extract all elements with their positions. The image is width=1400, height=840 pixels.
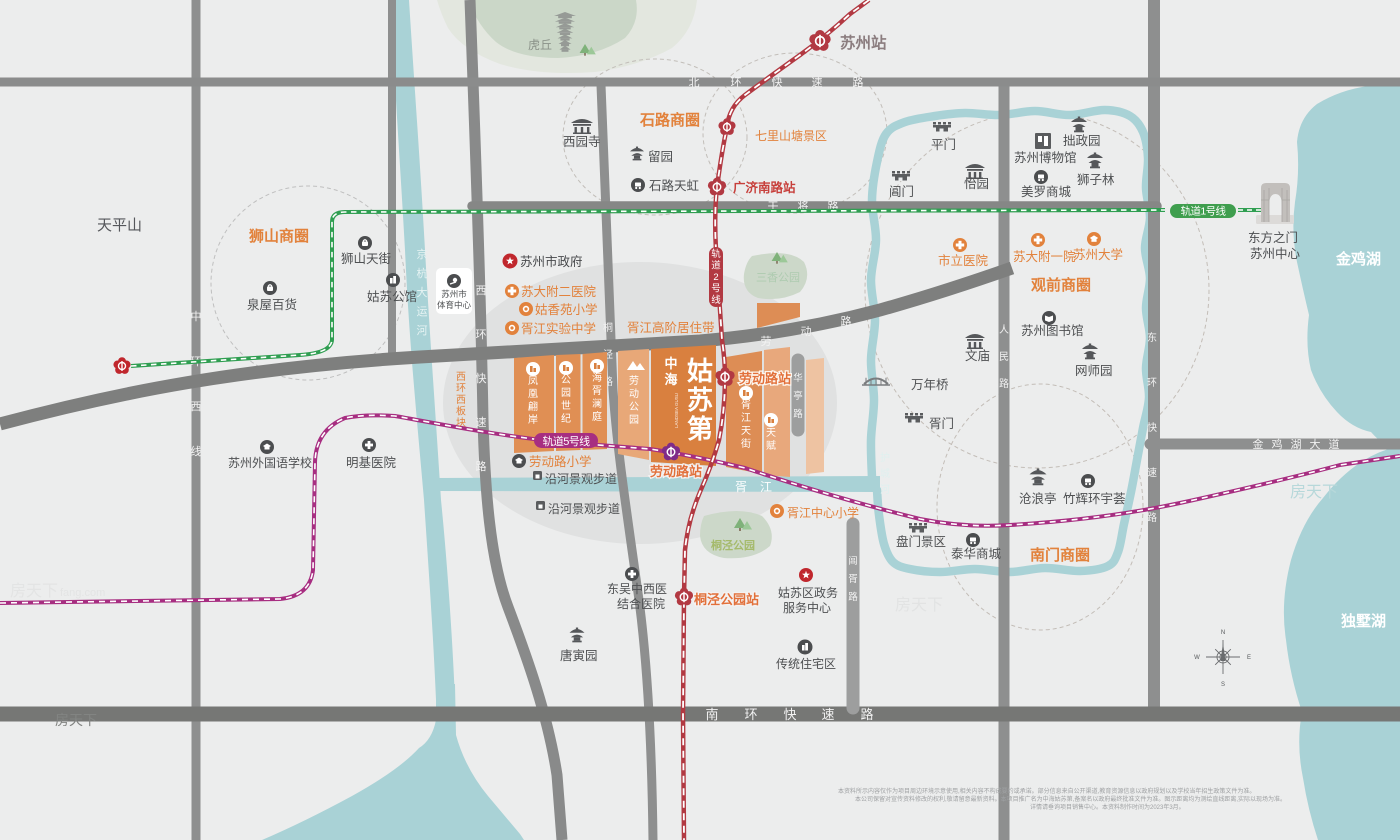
svg-text:城: 城	[880, 468, 890, 480]
svg-text:金鸡湖: 金鸡湖	[1335, 250, 1381, 268]
svg-text:胥江高阶居住带: 胥江高阶居住带	[627, 320, 715, 335]
svg-text:路: 路	[848, 591, 858, 603]
svg-text:胥: 胥	[741, 399, 751, 411]
svg-text:路: 路	[860, 707, 873, 722]
svg-text:沧浪亭: 沧浪亭	[1019, 491, 1057, 506]
svg-text:路: 路	[1147, 511, 1157, 524]
svg-text:速: 速	[476, 416, 487, 429]
svg-text:轨道1号线: 轨道1号线	[1181, 205, 1227, 218]
svg-text:房天下: 房天下	[895, 596, 943, 614]
svg-text:第: 第	[687, 414, 713, 444]
svg-text:狮子林: 狮子林	[1077, 173, 1115, 187]
svg-text:速: 速	[1147, 467, 1157, 479]
svg-text:唐寅园: 唐寅园	[560, 648, 598, 663]
svg-text:结合医院: 结合医院	[617, 596, 665, 611]
svg-text:庭: 庭	[592, 410, 602, 423]
svg-text:详情请垂询项目销售中心。本资料制作时间为2023年3月。: 详情请垂询项目销售中心。本资料制作时间为2023年3月。	[1030, 803, 1185, 811]
svg-text:民: 民	[999, 351, 1009, 363]
svg-text:留园: 留园	[648, 150, 673, 164]
svg-text:街: 街	[741, 437, 751, 450]
svg-text:澜: 澜	[592, 398, 602, 410]
svg-text:凤: 凤	[528, 375, 538, 387]
svg-text:人: 人	[999, 324, 1009, 336]
svg-text:房天下: 房天下	[10, 582, 58, 600]
svg-text:石路商圈: 石路商圈	[639, 111, 700, 129]
svg-text:七里山塘景区: 七里山塘景区	[755, 128, 827, 143]
svg-text:金: 金	[1253, 437, 1264, 451]
svg-text:劳: 劳	[761, 335, 772, 348]
svg-text:体育中心: 体育中心	[437, 300, 472, 310]
svg-text:块: 块	[456, 417, 466, 429]
svg-text:胥: 胥	[592, 385, 602, 397]
svg-text:三香公园: 三香公园	[756, 271, 800, 284]
svg-text:华: 华	[793, 372, 803, 384]
svg-text:环: 环	[731, 77, 742, 89]
svg-text:道: 道	[711, 260, 721, 272]
svg-text:河: 河	[880, 484, 890, 496]
svg-text:天平山: 天平山	[97, 217, 142, 234]
svg-text:路: 路	[999, 377, 1009, 390]
svg-text:亭: 亭	[793, 390, 803, 402]
svg-text:观前商圈: 观前商圈	[1031, 276, 1091, 294]
svg-text:南门商圈: 南门商圈	[1030, 546, 1090, 564]
svg-text:狮山天街: 狮山天街	[341, 252, 391, 266]
svg-text:环: 环	[744, 707, 757, 722]
svg-text:网师园: 网师园	[1075, 364, 1113, 378]
svg-text:江: 江	[760, 480, 772, 494]
svg-text:苏州市政府: 苏州市政府	[520, 254, 583, 269]
svg-text:劳动路站: 劳动路站	[739, 371, 791, 386]
svg-text:桐泾公园站: 桐泾公园站	[694, 592, 759, 607]
svg-text:天: 天	[766, 428, 776, 439]
svg-text:桐: 桐	[603, 321, 613, 334]
svg-text:海: 海	[664, 372, 677, 387]
svg-text:环: 环	[1147, 378, 1157, 389]
svg-text:江: 江	[741, 412, 751, 424]
svg-text:苏大附一院: 苏大附一院	[1013, 249, 1076, 264]
svg-text:N: N	[1221, 630, 1225, 636]
svg-text:房天下: 房天下	[55, 712, 97, 728]
svg-text:平门: 平门	[931, 137, 956, 152]
svg-text:北: 北	[689, 76, 700, 89]
svg-text:中: 中	[664, 356, 677, 371]
svg-text:W: W	[1194, 655, 1200, 661]
svg-text:赋: 赋	[766, 440, 776, 452]
svg-text:胥: 胥	[735, 480, 747, 494]
svg-text:沿河景观步道: 沿河景观步道	[545, 472, 617, 486]
svg-text:文庙: 文庙	[965, 348, 990, 363]
svg-text:姑苏区政务: 姑苏区政务	[778, 585, 838, 600]
svg-text:石路天虹: 石路天虹	[649, 178, 700, 193]
svg-text:南: 南	[705, 707, 718, 722]
svg-text:广济南路站: 广济南路站	[733, 180, 796, 195]
svg-text:本公司保留对宣传资料修改的权利,敬请留意最新资料。本项目推广: 本公司保留对宣传资料修改的权利,敬请留意最新资料。本项目推广名为中海姑苏第,备案…	[855, 795, 1286, 803]
svg-text:湖: 湖	[1291, 438, 1302, 451]
svg-text:环: 环	[476, 329, 487, 341]
svg-text:房天下: 房天下	[1290, 483, 1338, 501]
svg-text:姑苏公馆: 姑苏公馆	[367, 289, 417, 304]
svg-text:速: 速	[812, 76, 823, 89]
svg-text:拙政园: 拙政园	[1063, 134, 1101, 148]
svg-text:天: 天	[741, 426, 751, 437]
svg-text:桐泾公园: 桐泾公园	[711, 538, 755, 552]
svg-text:E: E	[1247, 655, 1251, 661]
svg-text:公: 公	[629, 402, 639, 413]
svg-text:路: 路	[793, 408, 803, 420]
svg-text:中: 中	[191, 310, 202, 323]
svg-text:路: 路	[853, 76, 864, 89]
svg-text:虎丘: 虎丘	[528, 38, 552, 52]
svg-text:杭: 杭	[417, 266, 428, 280]
svg-text:市立医院: 市立医院	[938, 253, 989, 268]
svg-text:胥: 胥	[848, 573, 858, 585]
svg-text:路: 路	[476, 460, 487, 473]
svg-text:怡园: 怡园	[964, 177, 989, 191]
svg-text:2: 2	[713, 272, 718, 283]
svg-text:快: 快	[1147, 422, 1157, 434]
svg-text:快: 快	[772, 76, 783, 89]
svg-text:服务中心: 服务中心	[783, 600, 831, 615]
svg-text:速: 速	[821, 707, 834, 722]
svg-text:苏州中心: 苏州中心	[1250, 246, 1301, 261]
svg-text:胥江中心小学: 胥江中心小学	[787, 505, 859, 520]
svg-text:劳动路小学: 劳动路小学	[529, 454, 592, 469]
svg-text:苏州站: 苏州站	[840, 33, 887, 52]
svg-text:阊门: 阊门	[889, 184, 914, 199]
svg-text:竹辉环宇荟: 竹辉环宇荟	[1063, 491, 1126, 506]
svg-text:苏: 苏	[687, 385, 713, 415]
svg-text:独墅湖: 独墅湖	[1341, 612, 1386, 630]
svg-text:园: 园	[561, 387, 571, 399]
svg-text:线: 线	[191, 444, 202, 458]
svg-text:苏州大学: 苏州大学	[1073, 247, 1123, 262]
svg-text:板: 板	[456, 405, 466, 418]
svg-text:运: 运	[417, 305, 428, 318]
svg-text:大: 大	[417, 285, 428, 299]
svg-text:大: 大	[1310, 437, 1321, 451]
svg-text:苏州外国语学校: 苏州外国语学校	[228, 455, 312, 470]
svg-text:美罗商城: 美罗商城	[1021, 184, 1072, 199]
svg-text:劳动路站: 劳动路站	[650, 464, 702, 479]
svg-text:京: 京	[417, 247, 428, 261]
svg-text:快: 快	[783, 707, 796, 722]
svg-text:轨道5号线: 轨道5号线	[542, 434, 590, 448]
svg-text:环: 环	[456, 384, 466, 395]
svg-text:LANDSEA GUSU: LANDSEA GUSU	[674, 393, 679, 428]
svg-text:海: 海	[592, 371, 602, 384]
svg-text:西: 西	[191, 401, 202, 413]
svg-text:苏州图书馆: 苏州图书馆	[1021, 323, 1084, 338]
svg-text:园: 园	[629, 414, 639, 426]
svg-text:阊: 阊	[848, 555, 858, 567]
svg-text:西园寺: 西园寺	[563, 135, 601, 149]
svg-text:东: 东	[1147, 331, 1157, 344]
svg-text:劳: 劳	[629, 374, 639, 387]
svg-text:号: 号	[711, 284, 721, 295]
svg-text:护: 护	[880, 451, 890, 464]
svg-text:世: 世	[561, 400, 571, 412]
svg-text:姑: 姑	[687, 356, 713, 386]
svg-text:泰华商城: 泰华商城	[951, 546, 1002, 561]
svg-text:万年桥: 万年桥	[911, 378, 949, 392]
svg-text:本资料所示内容仅作为项目周边环境示意使用,相关内容不构成要约: 本资料所示内容仅作为项目周边环境示意使用,相关内容不构成要约或承诺。部分信息来自…	[838, 787, 1255, 795]
svg-text:姑香苑小学: 姑香苑小学	[535, 302, 598, 317]
svg-text:道: 道	[1329, 437, 1340, 451]
svg-text:快: 快	[476, 372, 487, 385]
svg-text:线: 线	[711, 294, 721, 306]
svg-text:东方之门: 东方之门	[1248, 230, 1298, 245]
svg-text:岸: 岸	[528, 414, 538, 426]
svg-text:西: 西	[456, 395, 466, 406]
svg-text:明基医院: 明基医院	[346, 456, 397, 470]
svg-text:S: S	[1221, 682, 1225, 688]
svg-text:河: 河	[417, 324, 428, 337]
svg-text:翩: 翩	[528, 400, 538, 413]
svg-text:动: 动	[801, 325, 812, 338]
svg-text:动: 动	[629, 388, 639, 400]
svg-text:fang.com: fang.com	[60, 587, 105, 599]
svg-text:路: 路	[841, 315, 852, 328]
svg-text:轨: 轨	[711, 248, 721, 260]
svg-text:传统住宅区: 传统住宅区	[776, 656, 836, 671]
svg-text:西: 西	[476, 285, 487, 297]
svg-text:苏州博物馆: 苏州博物馆	[1014, 150, 1077, 165]
svg-text:东吴中西医: 东吴中西医	[607, 581, 667, 596]
svg-text:苏州市: 苏州市	[441, 289, 467, 299]
svg-text:公: 公	[561, 375, 571, 386]
svg-text:鸡: 鸡	[1272, 437, 1283, 451]
svg-text:泉屋百货: 泉屋百货	[247, 297, 297, 312]
svg-text:苏大附二医院: 苏大附二医院	[521, 284, 597, 299]
svg-text:纪: 纪	[561, 413, 571, 425]
svg-text:凰: 凰	[528, 388, 538, 400]
svg-text:沿河景观步道: 沿河景观步道	[548, 502, 620, 516]
svg-text:盘门景区: 盘门景区	[896, 534, 946, 549]
svg-text:胥江实验中学: 胥江实验中学	[521, 321, 596, 336]
svg-text:西: 西	[456, 372, 466, 383]
svg-text:狮山商圈: 狮山商圈	[248, 227, 309, 245]
svg-text:胥门: 胥门	[929, 416, 954, 431]
